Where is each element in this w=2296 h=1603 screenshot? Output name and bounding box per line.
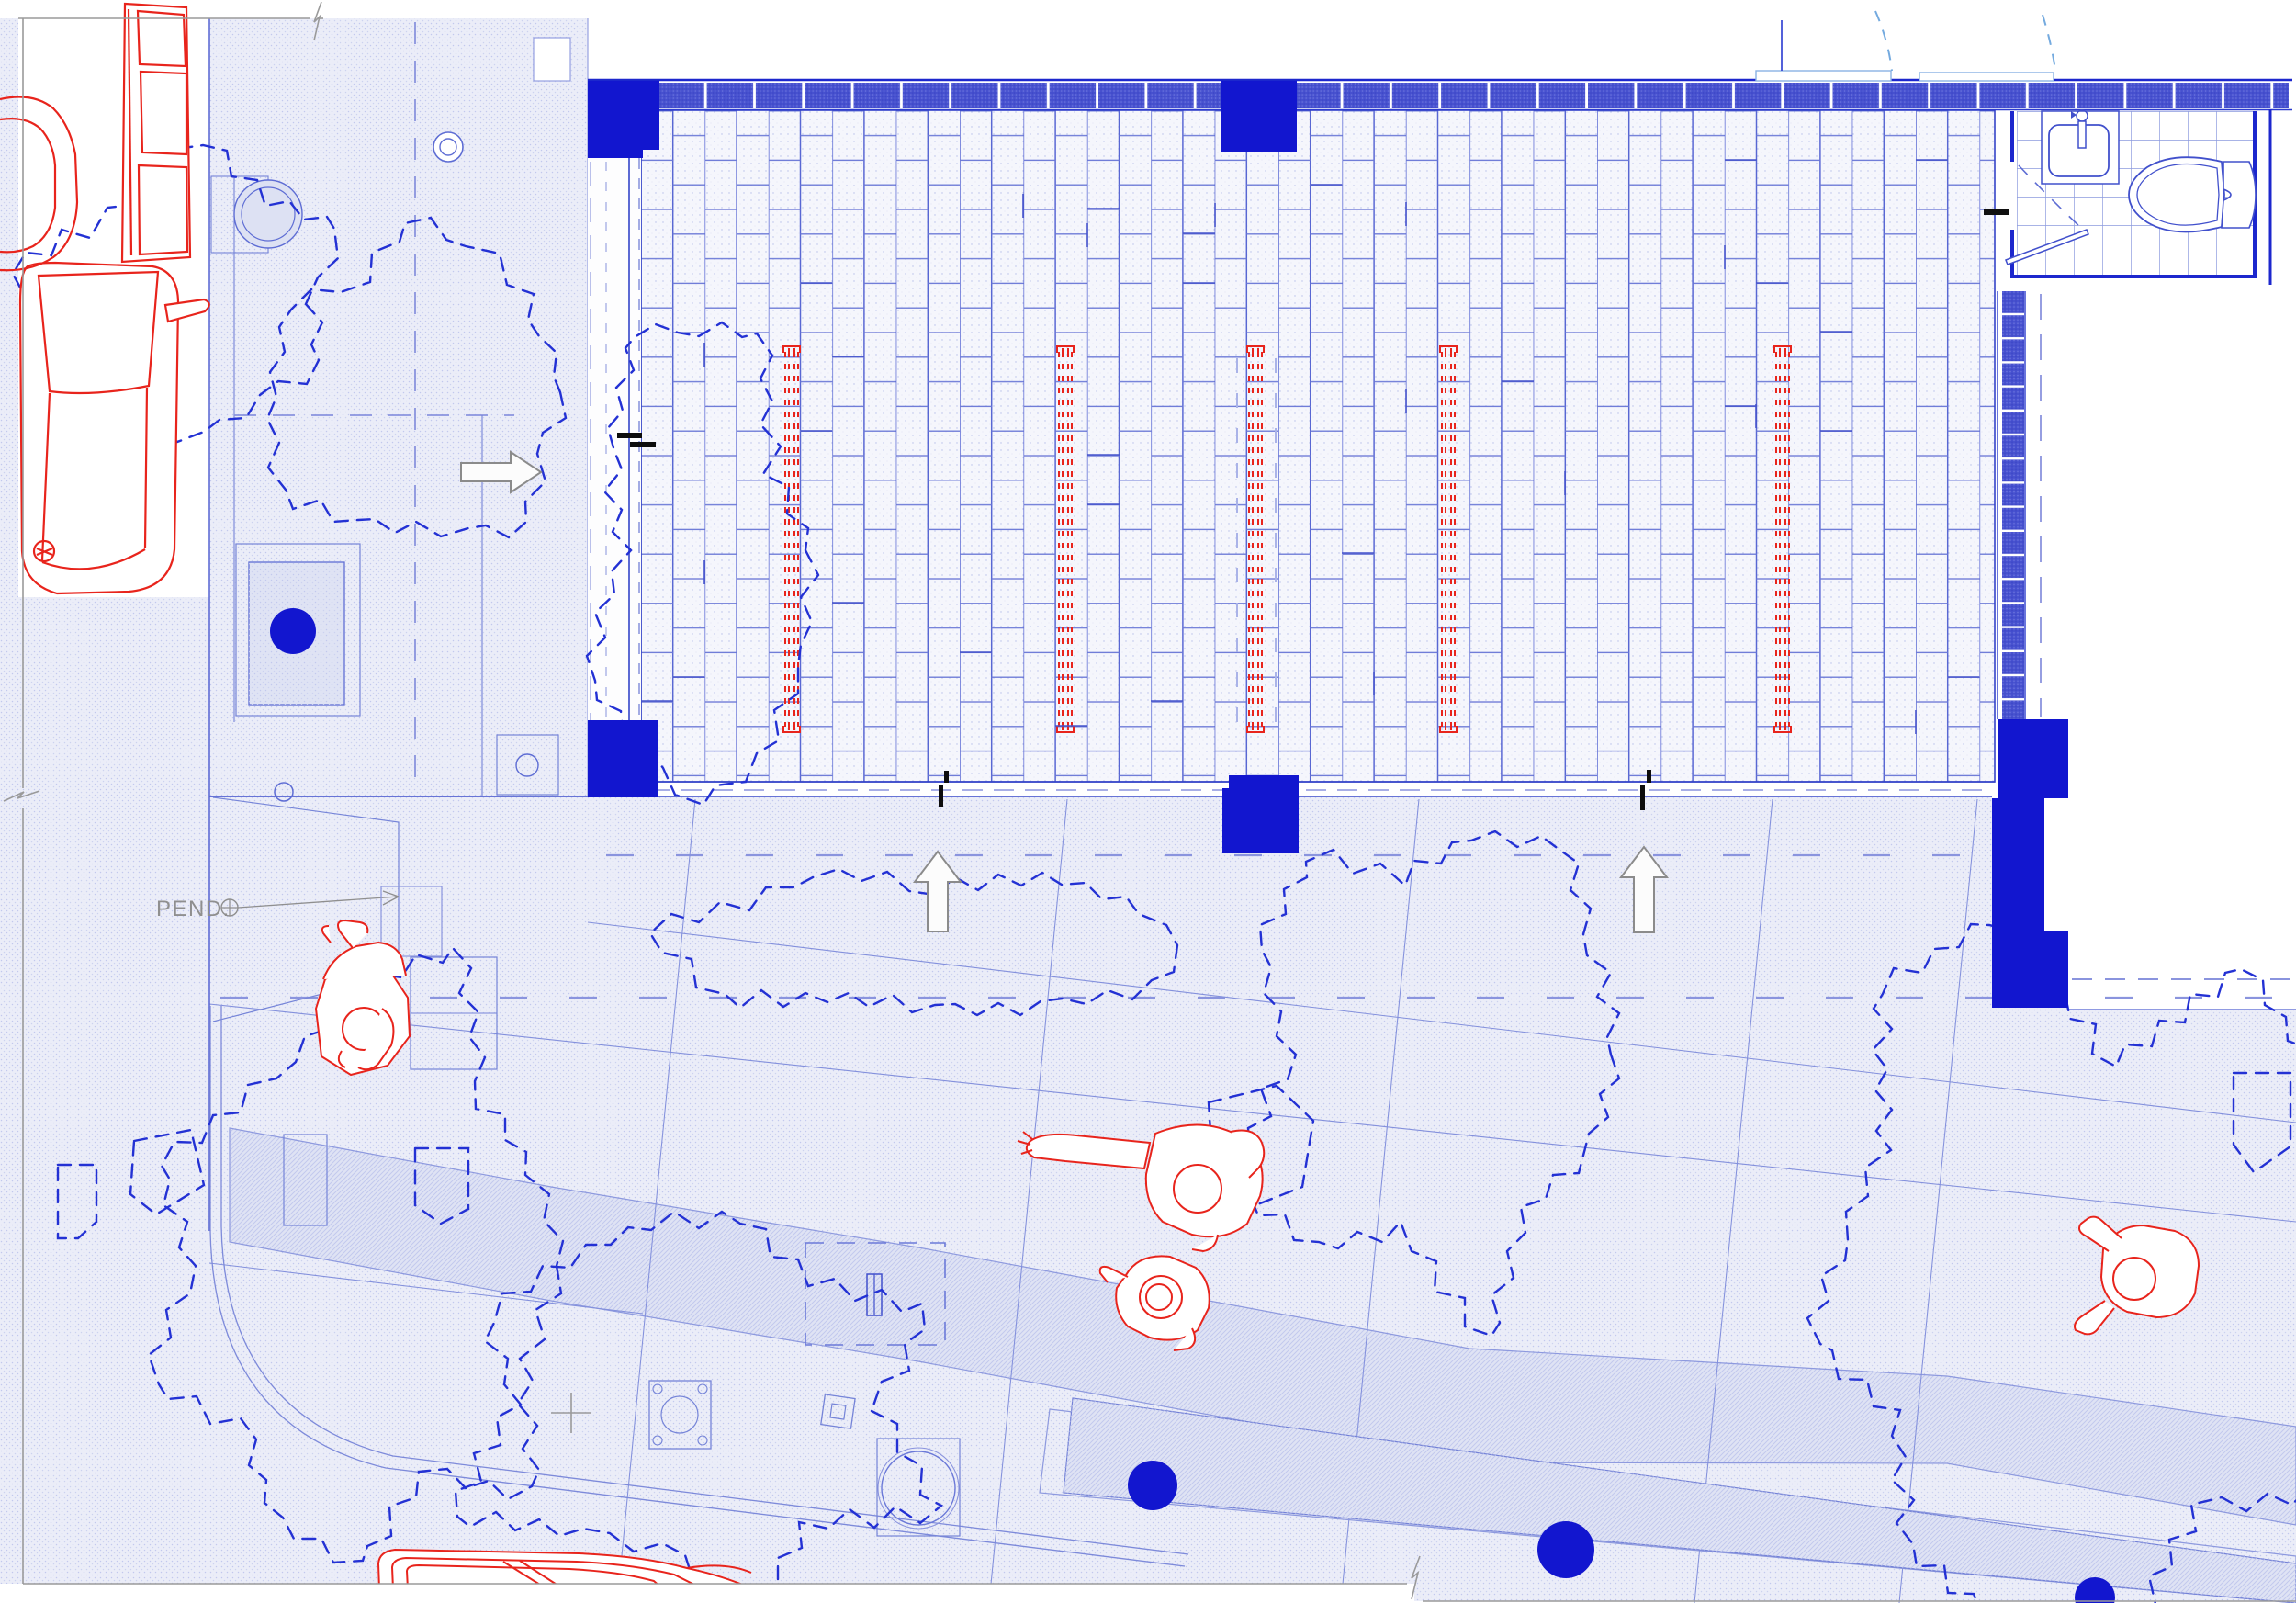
svg-text:PEND.: PEND.: [156, 897, 231, 921]
